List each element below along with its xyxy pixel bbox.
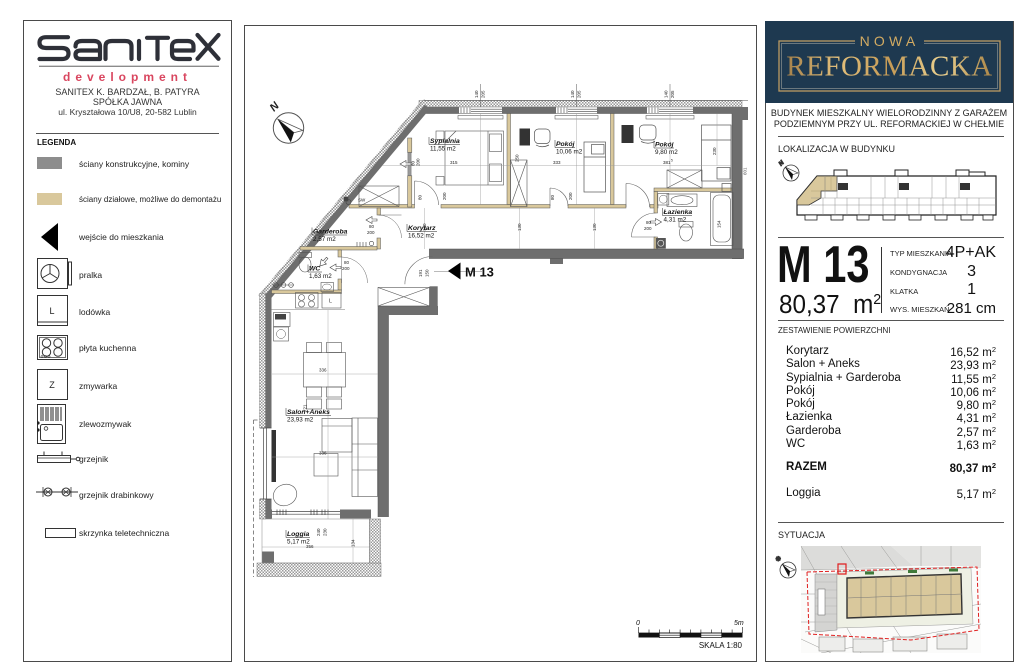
svg-text:80: 80 bbox=[646, 220, 652, 225]
svg-text:134: 134 bbox=[351, 539, 356, 547]
svg-text:200: 200 bbox=[568, 192, 573, 200]
svg-text:140: 140 bbox=[570, 90, 575, 98]
svg-text:Pokój: Pokój bbox=[556, 141, 575, 148]
svg-text:Garderoba: Garderoba bbox=[313, 229, 348, 236]
svg-text:Z: Z bbox=[49, 380, 55, 390]
svg-text:N: N bbox=[268, 99, 283, 114]
svg-text:150: 150 bbox=[425, 269, 430, 277]
svg-text:Salon+Aneks: Salon+Aneks bbox=[287, 409, 330, 416]
svg-text:5: 5 bbox=[671, 159, 673, 163]
svg-text:205: 205 bbox=[481, 90, 486, 98]
svg-text:140: 140 bbox=[474, 90, 479, 98]
svg-text:SW: SW bbox=[358, 198, 366, 203]
svg-text:9,80 m2: 9,80 m2 bbox=[655, 149, 678, 156]
svg-text:1,63 m2: 1,63 m2 bbox=[309, 273, 332, 280]
svg-text:230: 230 bbox=[323, 528, 328, 536]
svg-text:23,93 m2: 23,93 m2 bbox=[287, 417, 314, 424]
svg-text:205: 205 bbox=[577, 90, 582, 98]
svg-text:NOWA: NOWA bbox=[860, 33, 920, 49]
svg-text:11,55 m2: 11,55 m2 bbox=[430, 146, 456, 153]
svg-text:80: 80 bbox=[418, 194, 423, 200]
svg-text:SKALA 1:80: SKALA 1:80 bbox=[699, 641, 743, 650]
svg-text:230: 230 bbox=[712, 147, 717, 155]
svg-text:336: 336 bbox=[319, 451, 327, 456]
svg-text:5,17 m2: 5,17 m2 bbox=[287, 539, 310, 546]
svg-text:10,06 m2: 10,06 m2 bbox=[556, 149, 583, 156]
svg-text:205: 205 bbox=[670, 90, 675, 98]
svg-text:240: 240 bbox=[316, 528, 321, 536]
svg-text:16,52 m2: 16,52 m2 bbox=[408, 233, 435, 240]
svg-text:315: 315 bbox=[450, 160, 458, 165]
svg-text:REFORMACKA: REFORMACKA bbox=[786, 51, 992, 83]
svg-text:333: 333 bbox=[553, 160, 561, 165]
svg-text:130: 130 bbox=[592, 223, 597, 231]
svg-text:130: 130 bbox=[517, 223, 522, 231]
svg-text:80: 80 bbox=[369, 224, 375, 229]
svg-text:336: 336 bbox=[319, 368, 327, 373]
svg-text:L: L bbox=[49, 306, 54, 316]
svg-text:381: 381 bbox=[663, 160, 671, 165]
svg-text:WC: WC bbox=[309, 266, 320, 273]
svg-text:200: 200 bbox=[644, 226, 652, 231]
svg-text:Łazienka: Łazienka bbox=[663, 209, 693, 216]
svg-text:154: 154 bbox=[717, 220, 722, 228]
svg-text:2,57 m2: 2,57 m2 bbox=[313, 236, 336, 243]
svg-text:200: 200 bbox=[442, 192, 447, 200]
svg-text:Loggia: Loggia bbox=[287, 531, 309, 538]
svg-text:Pokój: Pokój bbox=[655, 142, 674, 149]
svg-text:4,31 m2: 4,31 m2 bbox=[664, 217, 687, 224]
svg-text:0: 0 bbox=[636, 620, 640, 627]
svg-text:601: 601 bbox=[743, 167, 748, 175]
svg-text:200: 200 bbox=[342, 266, 350, 271]
svg-text:✳: ✳ bbox=[774, 555, 783, 564]
svg-text:191: 191 bbox=[418, 269, 423, 277]
svg-text:80: 80 bbox=[550, 194, 555, 200]
svg-text:80: 80 bbox=[344, 260, 350, 265]
svg-text:250: 250 bbox=[515, 154, 520, 162]
svg-text:M 13: M 13 bbox=[465, 265, 494, 280]
svg-text:5m: 5m bbox=[734, 620, 744, 627]
svg-text:Sypialnia: Sypialnia bbox=[430, 138, 460, 145]
svg-text:200: 200 bbox=[416, 158, 421, 166]
svg-text:200: 200 bbox=[367, 230, 375, 235]
svg-text:L: L bbox=[329, 299, 332, 305]
svg-text:140: 140 bbox=[664, 90, 669, 98]
svg-text:N: N bbox=[778, 160, 786, 168]
svg-text:Korytarz: Korytarz bbox=[408, 225, 436, 232]
